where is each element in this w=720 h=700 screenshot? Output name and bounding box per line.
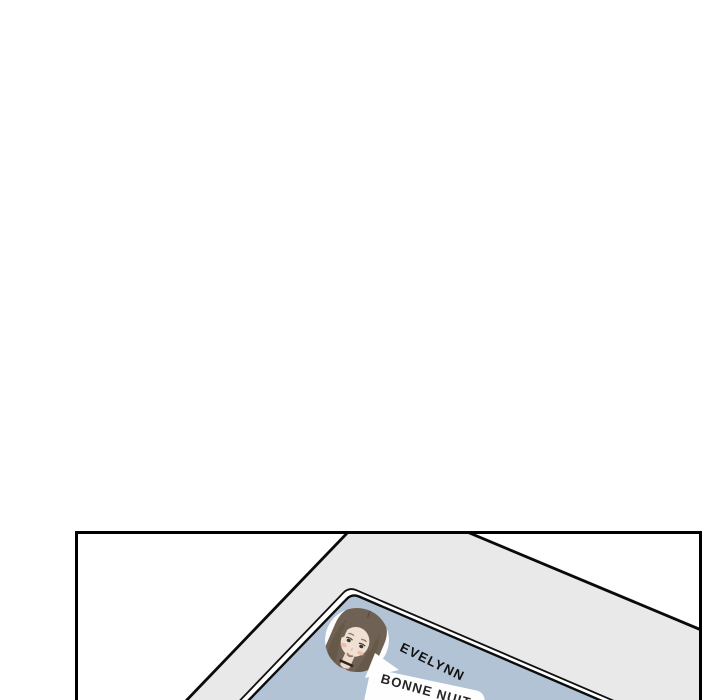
comic-panel: EVELYNN BONNE NUIT (75, 531, 702, 700)
panel-artwork: EVELYNN BONNE NUIT (78, 534, 699, 700)
comic-page: EVELYNN BONNE NUIT (0, 0, 720, 700)
